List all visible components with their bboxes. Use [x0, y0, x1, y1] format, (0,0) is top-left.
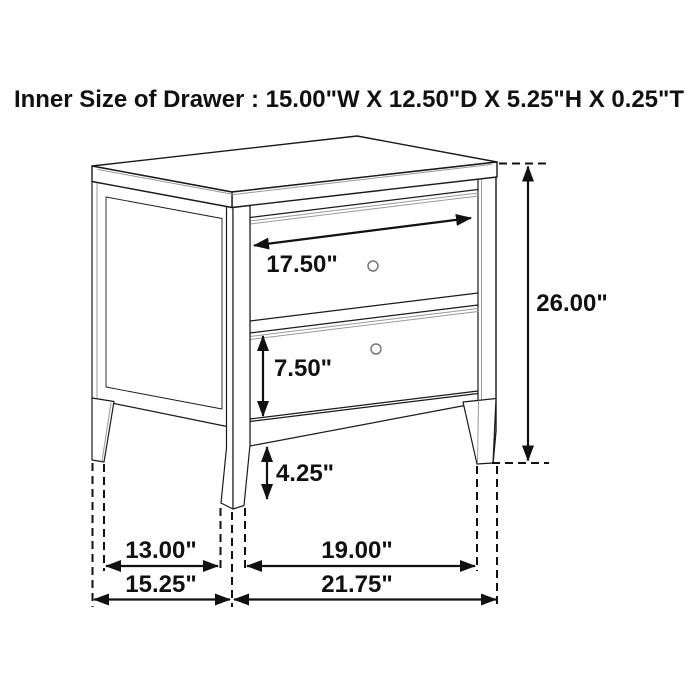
front-left-leg [221, 206, 250, 510]
knob-top-drawer [368, 261, 378, 271]
dimension-label: 13.00" [125, 537, 196, 564]
dimension-label: 19.00" [321, 537, 392, 564]
back-left-leg [92, 398, 114, 462]
dimension-top-drawer-width: 17.50" [254, 218, 471, 278]
knob-bottom-drawer [371, 344, 381, 354]
dimension-overall-width: 21.75" [234, 571, 496, 600]
side-inset-panel [106, 197, 222, 409]
nightstand-drawing [92, 136, 497, 509]
dimension-label: 17.50" [266, 251, 337, 278]
dimension-overall-depth: 15.25" [94, 571, 230, 600]
dimension-label: 15.25" [125, 571, 196, 598]
dimension-legs-inner-width: 19.00" [247, 537, 475, 566]
dimension-bottom-drawer-height: 7.50" [263, 336, 332, 416]
dimension-legs-inner-depth: 13.00" [106, 537, 218, 566]
front-right-leg [463, 177, 496, 464]
dimension-label: 7.50" [274, 355, 332, 382]
tabletop [92, 136, 497, 208]
front-face [250, 178, 478, 446]
dimension-label: 21.75" [321, 571, 392, 598]
bottom-rail [250, 394, 478, 447]
dimension-label: 4.25" [276, 460, 334, 487]
furniture-dimension-diagram: Inner Size of Drawer : 15.00"W X 12.50"D… [0, 0, 700, 700]
dimension-overall-height: 26.00" [528, 167, 608, 461]
side-panel [92, 182, 227, 427]
diagram-title: Inner Size of Drawer : 15.00"W X 12.50"D… [14, 86, 684, 113]
dimension-annotations: 17.50" 7.50" 4.25" 26.00" 13.00" 19.00" … [94, 167, 608, 600]
dimension-label: 26.00" [536, 290, 607, 317]
dimension-leg-height: 4.25" [267, 447, 334, 499]
